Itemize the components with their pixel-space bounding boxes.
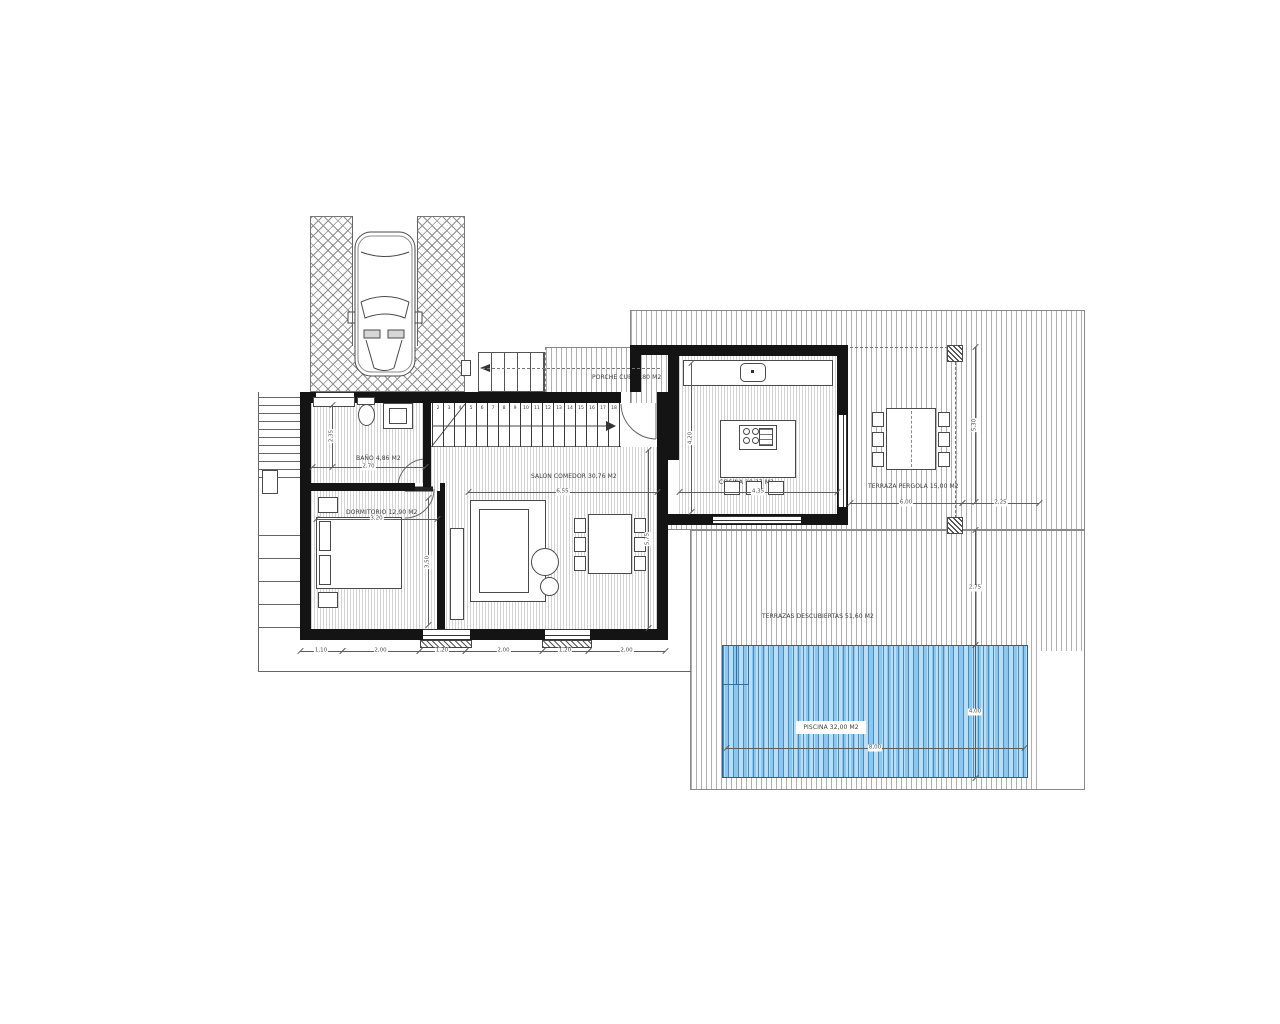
exterior-step	[258, 429, 300, 430]
burner	[743, 428, 750, 435]
dimension-tick	[662, 648, 668, 654]
stair-tread-line	[619, 403, 620, 447]
exterior-step	[258, 413, 300, 414]
stair-tread-number: 7	[488, 405, 498, 412]
side-table	[531, 548, 559, 576]
pool-label-box: PISCINA 32,00 M2	[796, 721, 866, 734]
chair	[634, 518, 646, 533]
living-room-label: SALON COMEDOR 30,76 M2	[531, 473, 617, 481]
dimension-label: 2,35	[329, 429, 336, 443]
sofa-seat	[479, 509, 529, 593]
burner	[752, 428, 759, 435]
chair	[938, 452, 950, 467]
open-terrace-label: TERRAZAS DESCUBIERTAS 51,60 M2	[762, 613, 874, 621]
dimension-label: 6,00	[899, 500, 913, 507]
chair	[634, 556, 646, 571]
exterior-step	[258, 604, 300, 605]
dimension-label: 2,75	[968, 584, 982, 591]
chair	[938, 412, 950, 427]
wall-segment	[300, 392, 311, 640]
exterior-step	[258, 397, 300, 398]
exterior-step	[258, 581, 300, 582]
bathroom-label: BAÑO 4,86 M2	[356, 455, 401, 463]
stair-tread-number: 16	[587, 405, 597, 412]
pillow	[319, 521, 331, 551]
dimension-label: 3,20	[369, 516, 383, 523]
wall-segment	[630, 345, 670, 355]
pool-step-line	[748, 646, 749, 684]
boundary-line	[258, 671, 691, 672]
stair-tread-number: 18	[609, 405, 619, 412]
stair-tread-number: 17	[598, 405, 608, 412]
dimension-label: 1,20	[435, 648, 449, 655]
dimension-label: 1,10	[314, 648, 328, 655]
vanity-basin	[389, 408, 407, 424]
chair	[574, 537, 586, 552]
stair-tread-number: 13	[554, 405, 564, 412]
window	[713, 516, 801, 524]
chair	[574, 556, 586, 571]
dashed-line	[482, 368, 660, 369]
exterior-step	[258, 453, 300, 454]
wall-segment	[437, 491, 445, 640]
dimension-label: 2,00	[496, 648, 510, 655]
exterior-step	[258, 461, 300, 462]
chair	[938, 432, 950, 447]
stair-tread-number: 8	[499, 405, 509, 412]
exterior-step	[258, 445, 300, 446]
terrace-white-margin	[1041, 651, 1084, 789]
dimension-label: 3,50	[425, 554, 432, 568]
window	[838, 415, 847, 507]
wall-segment	[657, 392, 668, 640]
wc-bowl	[358, 404, 375, 426]
stair-tread-number: 14	[565, 405, 575, 412]
stair-tread-number: 5	[466, 405, 476, 412]
exterior-step	[258, 437, 300, 438]
exterior-step	[258, 535, 300, 536]
chair	[872, 452, 884, 467]
stair-tread-number: 2	[433, 405, 443, 412]
nightstand	[318, 592, 338, 608]
stair-tread-number: 11	[532, 405, 542, 412]
pergola-column	[947, 345, 963, 362]
stair-tread-number: 10	[521, 405, 531, 412]
dimension-label: 2,70	[361, 464, 375, 471]
stair-tread-number: 12	[543, 405, 553, 412]
entry-steps	[478, 352, 545, 392]
driveway-car-path	[352, 216, 418, 346]
pergola-label: TERRAZA PERGOLA 15,00 M2	[868, 483, 959, 491]
stair-tread-number: 15	[576, 405, 586, 412]
wall-segment	[300, 629, 668, 640]
chair	[872, 432, 884, 447]
porch-label: PORCHE CUB. 1,80 M2	[592, 374, 661, 382]
dimension-label: 4,00	[968, 708, 982, 715]
faucet	[751, 370, 754, 373]
stair-tread-number: 6	[477, 405, 487, 412]
stair-tread-number: 3	[444, 405, 454, 412]
burner	[743, 437, 750, 444]
boundary-line	[258, 392, 259, 672]
wall-segment	[668, 356, 679, 460]
chair	[872, 412, 884, 427]
wall-segment	[440, 483, 445, 491]
pergola-column	[947, 517, 963, 534]
pillow	[319, 555, 331, 585]
window	[545, 629, 590, 640]
pergola-table	[886, 408, 936, 470]
wall-segment	[423, 398, 431, 487]
stair-tread-number: 9	[510, 405, 520, 412]
boundary-line	[431, 446, 621, 447]
nightstand	[318, 497, 338, 513]
exterior-step	[258, 627, 300, 628]
dashed-line	[850, 347, 948, 348]
exterior-step	[258, 421, 300, 422]
grill	[759, 428, 773, 446]
dimension-label: 1,20	[558, 648, 572, 655]
dashed-line	[955, 362, 956, 518]
dimension-label: 2,25	[993, 500, 1007, 507]
wall-segment	[300, 483, 415, 491]
wall-segment	[630, 355, 641, 392]
dimension-label: 8,00	[868, 745, 882, 752]
boundary-line	[352, 216, 353, 346]
dimension-label: 2,00	[373, 648, 387, 655]
chair	[574, 518, 586, 533]
stair-tread-number: 4	[455, 405, 465, 412]
floor-plan-canvas: PISCINA 32,00 M2 PORCHE CUB. 1,80 M2 BAÑ…	[0, 0, 1280, 1024]
dimension-label: 5,30	[972, 417, 979, 431]
pool-label: PISCINA 32,00 M2	[803, 724, 858, 732]
tv-unit	[450, 528, 464, 620]
pool-step-line	[723, 684, 749, 685]
dimension-label: 4,35	[751, 489, 765, 496]
side-table	[540, 577, 559, 596]
dimension-label: 4,20	[688, 430, 695, 444]
dining-table	[588, 514, 632, 574]
dimension-label: 5,75	[645, 532, 652, 546]
exterior-step	[258, 558, 300, 559]
exterior-step	[258, 405, 300, 406]
pillar	[461, 360, 471, 376]
wall-segment	[668, 345, 848, 356]
boundary-line	[417, 216, 418, 346]
dimension-label: 2,00	[619, 648, 633, 655]
burner	[752, 437, 759, 444]
dimension-label: 6,55	[555, 489, 569, 496]
pool-step-line	[736, 646, 737, 684]
pillar	[262, 470, 278, 494]
window	[423, 629, 470, 640]
